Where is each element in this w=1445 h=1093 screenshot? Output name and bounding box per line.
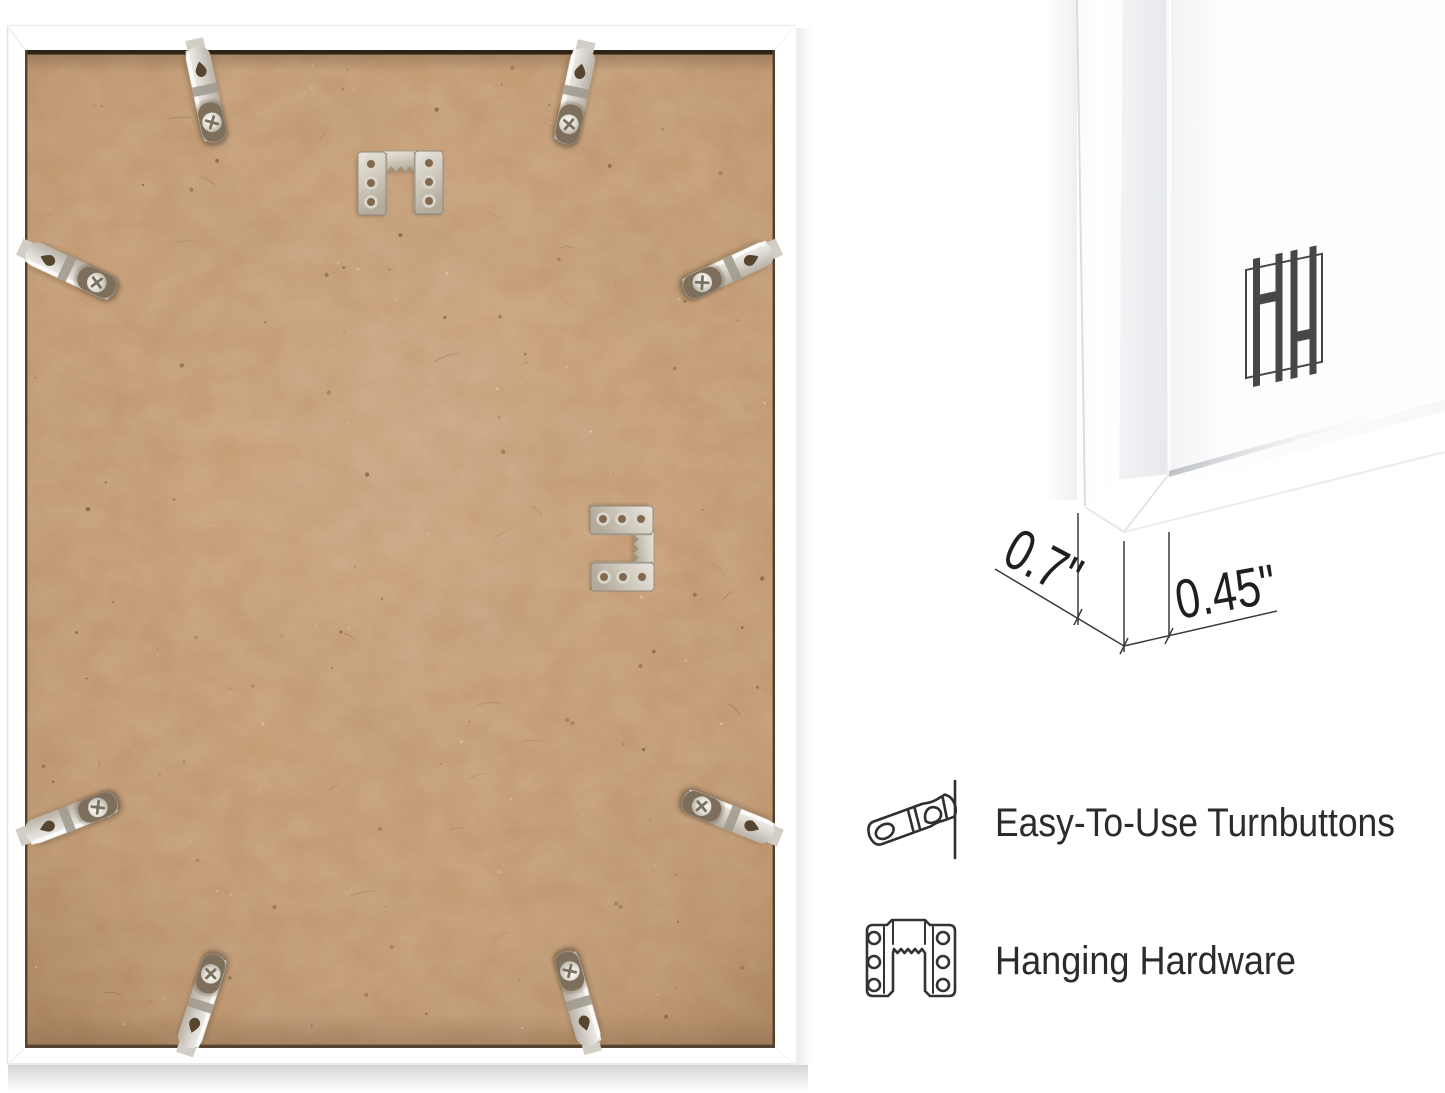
svg-text:Easy-To-Use Turnbuttons: Easy-To-Use Turnbuttons xyxy=(995,801,1395,845)
svg-text:0.45": 0.45" xyxy=(1170,552,1280,630)
svg-text:Hanging Hardware: Hanging Hardware xyxy=(995,939,1296,983)
